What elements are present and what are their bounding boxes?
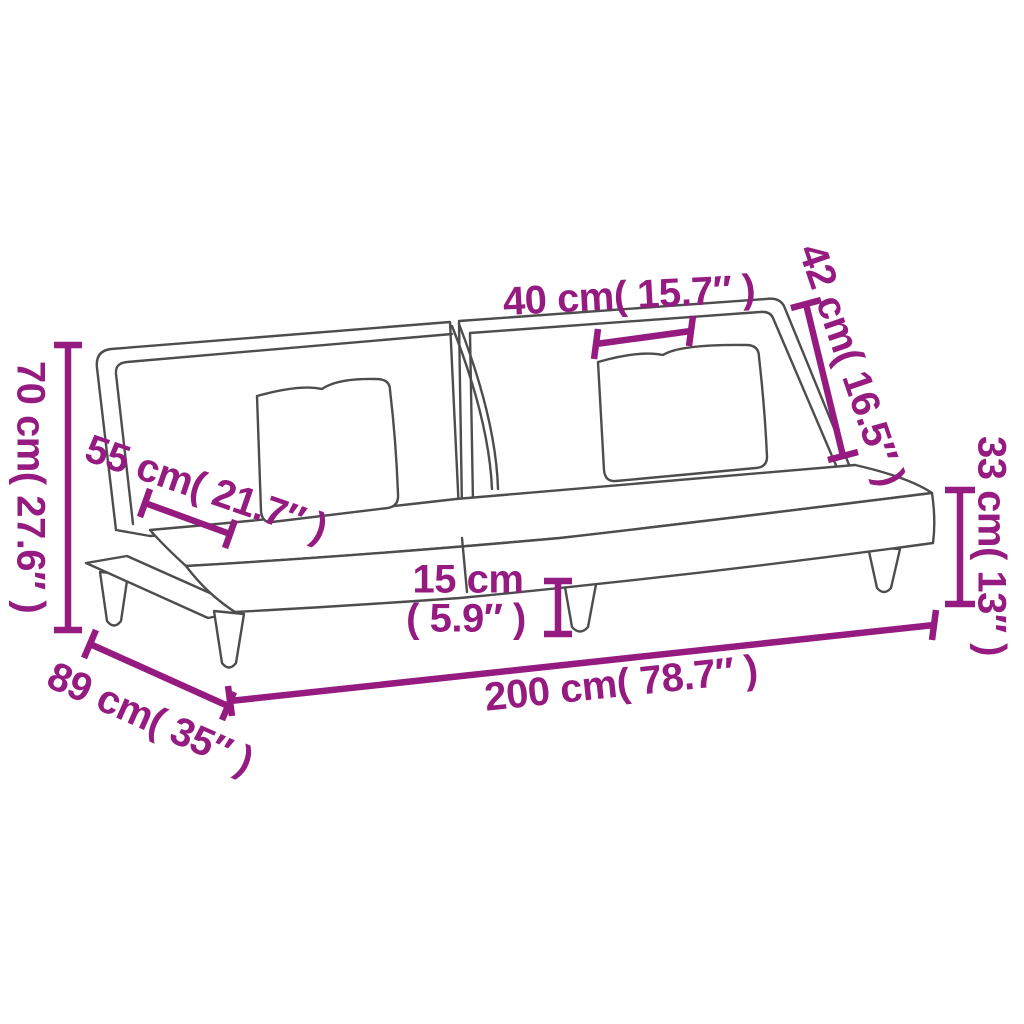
dim-label-leg-height-inch: ( 5.9″ ) (406, 597, 526, 642)
sofa-leg-front-right (868, 547, 900, 592)
diagram-canvas (0, 0, 1024, 1024)
sofa-leg-front-left (214, 611, 244, 668)
dimension-line-back-height-70cm (54, 345, 82, 630)
sofa-pillow-right (598, 345, 767, 481)
dim-label-seat-height: 33 cm( 13″ ) (969, 436, 1014, 656)
sofa-dimension-diagram: 70 cm( 27.6″ ) 55 cm( 21.7″ ) 40 cm( 15.… (0, 0, 1024, 1024)
dim-label-back-height: 70 cm( 27.6″ ) (8, 361, 53, 613)
